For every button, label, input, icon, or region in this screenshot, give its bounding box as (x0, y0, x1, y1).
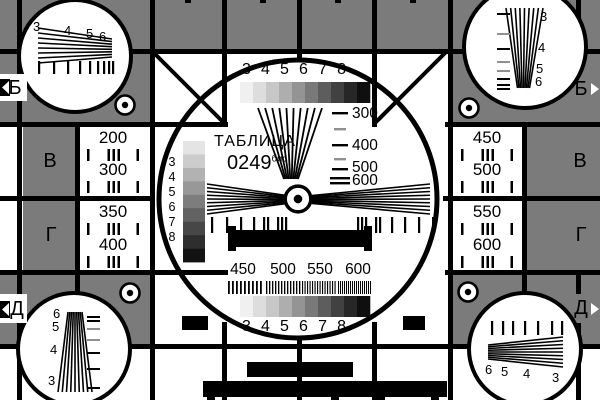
gray-column-digit: 8 (166, 231, 178, 244)
gray-column-digit: 4 (166, 171, 178, 184)
bl-wedge-digit: 5 (52, 320, 59, 333)
gray-column-digit: 5 (166, 186, 178, 199)
bottom-grayscale-digits: 345678 (242, 319, 346, 335)
cell-450: 450 (452, 129, 522, 146)
br-wedge-digit: 3 (552, 371, 559, 384)
row-label-right-v: В (569, 151, 591, 171)
cell-600: 600 (452, 236, 522, 253)
cell-500: 500 (452, 161, 522, 178)
cell-200: 200 (78, 129, 148, 146)
freq-label-500: 500 (265, 262, 301, 278)
row-label-right-g: Г (570, 225, 592, 245)
test-card-graphics (0, 0, 600, 400)
gray-column-digit: 7 (166, 216, 178, 229)
cell-300: 300 (78, 161, 148, 178)
tr-wedge-digit: 4 (538, 41, 545, 54)
gray-column-digit: 6 (166, 201, 178, 214)
freq-label-600: 600 (340, 262, 376, 278)
gray-column-digit: 3 (166, 156, 178, 169)
wedge-label-400: 400 (352, 138, 378, 154)
row-label-right-b: Б (570, 79, 592, 99)
tl-wedge-digit: 6 (99, 30, 106, 43)
row-label-left-d: Д (6, 299, 28, 319)
tl-wedge-digit: 4 (64, 24, 71, 37)
tv-test-card: Б В Г Д Б В Г Д 200 300 350 400 450 500 … (0, 0, 600, 400)
tl-wedge-digit: 3 (33, 20, 40, 33)
br-wedge-digit: 5 (501, 365, 508, 378)
cell-350: 350 (78, 203, 148, 220)
row-label-left-v: В (39, 151, 61, 171)
cell-400: 400 (78, 236, 148, 253)
tr-wedge-digit: 6 (535, 75, 542, 88)
top-grayscale-digits: 345678 (242, 62, 346, 78)
card-code: 0249бис (227, 153, 287, 173)
cell-550: 550 (452, 203, 522, 220)
tr-wedge-digit: 3 (540, 10, 547, 23)
wedge-label-600: 600 (352, 173, 378, 189)
row-label-left-g: Г (40, 225, 62, 245)
card-title: ТАБЛИЦА (214, 134, 296, 150)
br-wedge-digit: 6 (485, 363, 492, 376)
bl-wedge-digit: 4 (50, 343, 57, 356)
bl-wedge-digit: 3 (48, 374, 55, 387)
corner-circle-bottom-left (18, 293, 130, 400)
wedge-label-300: 300 (352, 106, 378, 122)
tl-wedge-digit: 5 (86, 27, 93, 40)
br-wedge-digit: 4 (523, 367, 530, 380)
freq-label-550: 550 (302, 262, 338, 278)
freq-label-450: 450 (225, 262, 261, 278)
row-label-right-d: Д (570, 298, 592, 318)
row-label-left-b: Б (4, 78, 26, 98)
